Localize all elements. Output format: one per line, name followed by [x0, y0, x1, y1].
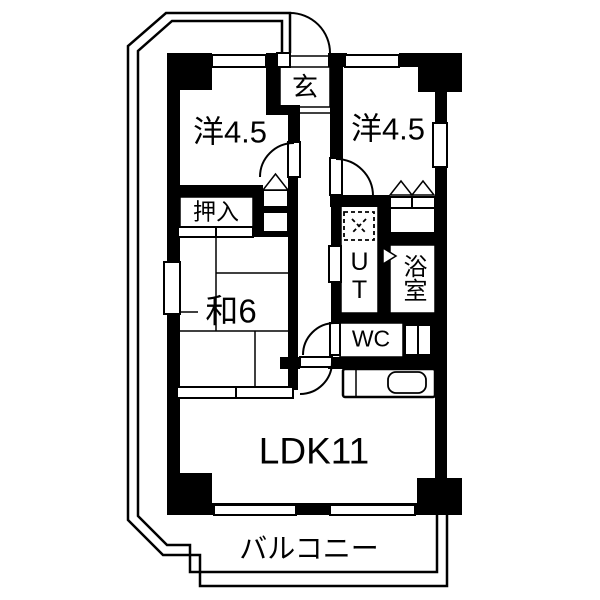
room-label-ldk: LDK11: [259, 433, 369, 470]
room-label-western-right: 洋4.5: [351, 114, 425, 145]
wall-westernright-left: [330, 53, 343, 158]
wall-westernleft-south: [177, 185, 253, 197]
wall-bath-south: [331, 313, 447, 323]
wall-kitchen-north: [328, 357, 447, 369]
room-label-bath: 浴室: [400, 254, 424, 302]
room-label-washitsu: 和6: [205, 295, 256, 328]
washitsu-sliding-door-1: [177, 387, 236, 398]
wall-utility-left-lower: [331, 282, 341, 313]
closet-b-lower: [263, 212, 288, 232]
washitsu-sliding-door-2: [236, 387, 293, 398]
floorplan: 玄 洋4.5 洋4.5 押入 和6 UT 浴室 WC LDK11 バルコニー: [0, 0, 600, 600]
window-westernright-top: [345, 55, 399, 67]
wall-bath-north: [378, 233, 447, 245]
wall-right-upper: [435, 90, 447, 125]
wall-corner-topleft: [167, 53, 212, 90]
folding-door-icon: [390, 181, 412, 195]
westernright-closet-box: [390, 208, 435, 233]
wall-corner-bottomright: [417, 478, 462, 515]
kitchen-sink: [388, 372, 426, 393]
door-leaf-wc: [330, 323, 340, 355]
wall-corridor-left-upper: [288, 115, 300, 144]
wall-corner-topright: [418, 53, 462, 92]
closet-b-upper: [263, 190, 288, 207]
wall-oshiire-right: [253, 185, 263, 237]
room-label-western-left: 洋4.5: [193, 117, 267, 148]
oshiire-sliding-door-2: [216, 227, 253, 237]
entry-door-arc: [290, 13, 330, 53]
room-label-wc: WC: [352, 328, 390, 351]
door-leaf-utility: [329, 246, 341, 282]
door-leaf-ldk: [300, 357, 332, 367]
room-label-oshiire: 押入: [193, 201, 239, 224]
folding-door-icon: [263, 174, 288, 190]
door-leaf-westernleft: [288, 142, 300, 177]
oshiire-sliding-door-1: [178, 227, 216, 237]
window-ldk-balcony-right: [330, 505, 415, 515]
entry-doorstop: [277, 53, 290, 67]
window-westernleft-top: [212, 55, 266, 67]
folding-door-icon: [412, 181, 434, 195]
room-label-utility: UT: [347, 248, 372, 304]
window-washitsu-side: [164, 262, 180, 314]
window-ldk-balcony-left: [214, 505, 296, 515]
wall-ldk-door-stub: [280, 357, 300, 369]
washer-icon: [344, 212, 374, 240]
wall-corner-bottomleft: [167, 473, 212, 515]
room-label-genkan: 玄: [292, 74, 318, 100]
door-leaf-westernright: [330, 158, 342, 195]
window-westernright-side: [433, 123, 447, 167]
room-label-balcony: バルコニー: [239, 535, 378, 563]
wall-utility-left-upper: [331, 205, 341, 246]
westernright-closet-track-1: [390, 197, 412, 208]
westernright-closet-track-2: [412, 197, 435, 208]
